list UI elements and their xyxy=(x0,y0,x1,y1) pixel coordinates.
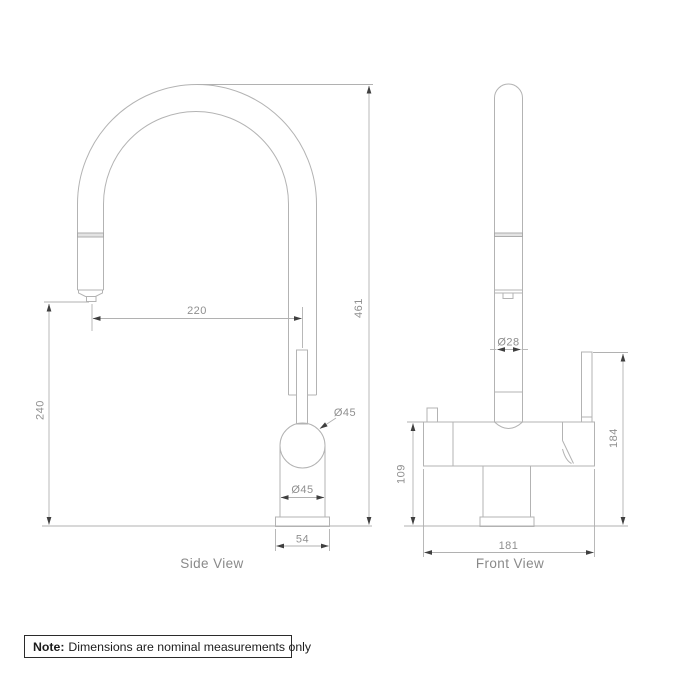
spout-outer-arc xyxy=(78,84,317,204)
spray-head-joint-front xyxy=(495,233,523,237)
spray-nozzle xyxy=(87,297,97,302)
front-view xyxy=(424,84,595,527)
ball-joint xyxy=(280,423,325,468)
dim-spout-clearance: 240 xyxy=(35,400,47,420)
spray-head-joint xyxy=(78,233,104,237)
column-body-junction xyxy=(495,422,523,429)
front-view-label: Front View xyxy=(476,556,544,571)
dim-handle-height: 184 xyxy=(608,428,620,448)
note-label: Note: xyxy=(33,640,64,654)
tap-dimension-drawing: 220 461 240 Ø45 Ø45 54 Side View xyxy=(0,0,675,675)
dim-body-diameter: Ø45 xyxy=(291,484,313,496)
dim-ball-diameter: Ø45 xyxy=(334,407,356,419)
spout-inner-arc xyxy=(104,112,289,204)
side-view-dimensions xyxy=(42,85,373,552)
dim-overall-height: 461 xyxy=(353,298,365,318)
side-view-label: Side View xyxy=(180,556,243,571)
base-plate-side xyxy=(276,517,330,527)
dim-overall-width: 181 xyxy=(499,540,519,552)
spray-nozzle-front xyxy=(503,293,513,299)
dim-spout-diameter: Ø28 xyxy=(497,337,519,349)
spout-column xyxy=(495,84,523,422)
base-plate-front xyxy=(480,517,534,527)
dim-spout-reach: 220 xyxy=(187,305,207,317)
handle-lever-side xyxy=(297,350,308,424)
note-text: Dimensions are nominal measurements only xyxy=(68,640,311,654)
dim-body-height: 109 xyxy=(396,464,408,484)
dim-base-width: 54 xyxy=(296,534,309,546)
side-spray-knob xyxy=(427,408,438,422)
spray-head-cap xyxy=(79,290,103,297)
note-box: Note: Dimensions are nominal measurement… xyxy=(24,635,292,658)
handle-lever-front xyxy=(582,352,593,422)
technical-drawing-page: 220 461 240 Ø45 Ø45 54 Side View xyxy=(0,0,675,675)
